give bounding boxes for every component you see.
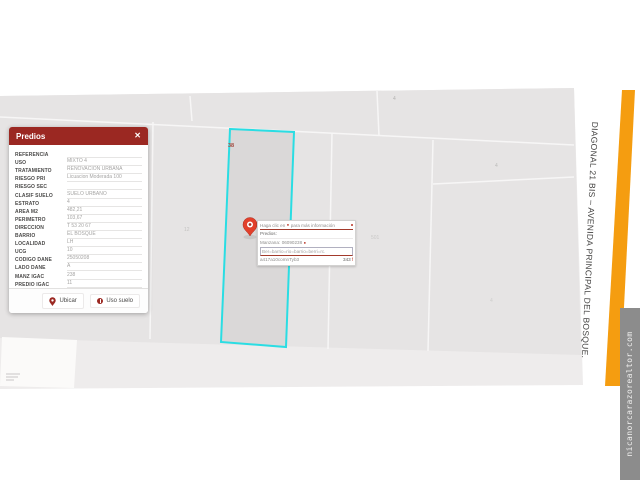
field-label: PERIMETRO: [15, 217, 67, 223]
field-value: [67, 182, 142, 190]
panel-title: Predios: [16, 132, 45, 141]
field-value: A: [67, 263, 142, 271]
tooltip-manzana-row: Manzana: 06090238 ●: [260, 239, 353, 247]
field-row-riesgo-sec: RIESGO SEC: [15, 182, 142, 190]
field-value: EL BOSQUE: [67, 231, 142, 239]
predios-panel-header: Predios ✕: [9, 127, 148, 145]
watermark-strip: nicanorcarazorealtor.com: [620, 308, 640, 480]
tooltip-footer-row: a417a10comnTyb3 343f: [260, 256, 353, 263]
field-row-codigo-dane: CODIGO DANE25050208: [15, 255, 142, 263]
ubicar-button[interactable]: Ubicar: [42, 293, 83, 309]
field-row-manz-igac: MANZ IGAC238: [15, 271, 142, 279]
field-row-tratamiento: TRATAMIENTORENOVACION URBANA: [15, 166, 142, 174]
predios-panel: Predios ✕ REFERENCIA USOMIXTO 4 TRATAMIE…: [9, 127, 148, 313]
panel-footer: Ubicar Uso suelo: [9, 288, 148, 313]
watermark-text: nicanorcarazorealtor.com: [620, 308, 640, 480]
field-label: DIRECCION: [15, 225, 67, 231]
parcel-number-4b: 4: [495, 164, 498, 169]
field-label: PREDIO IGAC: [15, 282, 67, 288]
tooltip-help-row: Haga clic en ● para más información: [260, 223, 353, 231]
field-row-direccion: DIRECCIONT 53 20 67: [15, 223, 142, 231]
field-row-ucg: UCG10: [15, 247, 142, 255]
field-value: SUELO URBANO: [67, 191, 142, 199]
tooltip-manzana-label: Manzana:: [260, 240, 280, 246]
tooltip-selected-row[interactable]: Ber=barrio=rio=barrio=berri=rc.: [260, 247, 353, 256]
tooltip-footer-suffix: f: [352, 257, 353, 262]
tooltip-help-suffix: para más información: [291, 223, 335, 229]
field-label: RIESGO SEC: [15, 184, 67, 190]
field-row-referencia: REFERENCIA: [15, 150, 142, 158]
field-label: RIESGO PRI: [15, 176, 67, 182]
field-label: AREA M2: [15, 209, 67, 215]
uso-suelo-button-label: Uso suelo: [106, 298, 133, 304]
field-label: CODIGO DANE: [15, 257, 67, 263]
close-icon[interactable]: ✕: [134, 132, 141, 140]
field-row-predio-igac: PREDIO IGAC11: [15, 280, 142, 288]
field-value: MIXTO 4: [67, 158, 142, 166]
field-label: LADO DANE: [15, 265, 67, 271]
tooltip-pin-icon: ●: [287, 223, 289, 227]
field-row-area-m2: AREA M2482,21: [15, 207, 142, 215]
field-value: 238: [67, 272, 142, 280]
field-row-localidad: LOCALIDADLH: [15, 239, 142, 247]
parcel-number-501: 501: [371, 236, 379, 241]
field-value: RENOVACION URBANA: [67, 166, 142, 174]
map-tooltip: Haga clic en ● para más información Pred…: [257, 220, 356, 266]
field-label: TRATAMIENTO: [15, 168, 67, 174]
parcel-number-12: 12: [184, 228, 190, 233]
parcel-number-4c: 4: [490, 299, 493, 304]
field-value: 10: [67, 247, 142, 255]
field-value: 482,21: [67, 207, 142, 215]
tooltip-footer-value: 343: [343, 257, 351, 262]
field-value: LH: [67, 239, 142, 247]
tooltip-help-prefix: Haga clic en: [260, 223, 285, 229]
field-label: REFERENCIA: [15, 152, 67, 158]
field-value: 25050208: [67, 255, 142, 263]
map-viewer-screen: 38 12 501 4 4 4 DIAGONAL 21 BIS – AVENID…: [0, 0, 640, 480]
field-label: CLASIF SUELO: [15, 193, 67, 199]
field-label: BARRIO: [15, 233, 67, 239]
field-value: [67, 150, 142, 158]
field-value: 11: [67, 280, 142, 288]
predios-field-list: REFERENCIA USOMIXTO 4 TRATAMIENTORENOVAC…: [9, 145, 148, 288]
field-label: USO: [15, 160, 67, 166]
field-row-lado-dane: LADO DANEA: [15, 263, 142, 271]
parcel-number-38: 38: [228, 144, 234, 150]
info-icon: [97, 298, 104, 305]
field-row-uso: USOMIXTO 4: [15, 158, 142, 166]
tooltip-manzana-value: 06090238: [282, 240, 302, 246]
field-label: MANZ IGAC: [15, 274, 67, 280]
field-row-clasif-suelo: CLASIF SUELOSUELO URBANO: [15, 190, 142, 198]
field-label: ESTRATO: [15, 201, 67, 207]
field-row-barrio: BARRIOEL BOSQUE: [15, 231, 142, 239]
tooltip-predios-heading: Predios:: [260, 230, 353, 239]
field-value: Licuacion Moderada 100: [67, 174, 142, 182]
tooltip-footer-left: a417a10comnTyb3: [260, 257, 299, 263]
tooltip-marker-icon: ●: [304, 241, 306, 245]
field-value: 4: [67, 199, 142, 207]
field-row-perimetro: PERIMETRO103,67: [15, 215, 142, 223]
field-row-estrato: ESTRATO4: [15, 199, 142, 207]
field-value: 103,67: [67, 215, 142, 223]
locate-pin-icon: [49, 297, 56, 306]
field-label: UCG: [15, 249, 67, 255]
field-row-riesgo-pri: RIESGO PRILicuacion Moderada 100: [15, 174, 142, 182]
field-label: LOCALIDAD: [15, 241, 67, 247]
parcel-number-4a: 4: [393, 97, 396, 102]
field-value: T 53 20 67: [67, 223, 142, 231]
ubicar-button-label: Ubicar: [59, 298, 76, 304]
uso-suelo-button[interactable]: Uso suelo: [90, 294, 140, 308]
